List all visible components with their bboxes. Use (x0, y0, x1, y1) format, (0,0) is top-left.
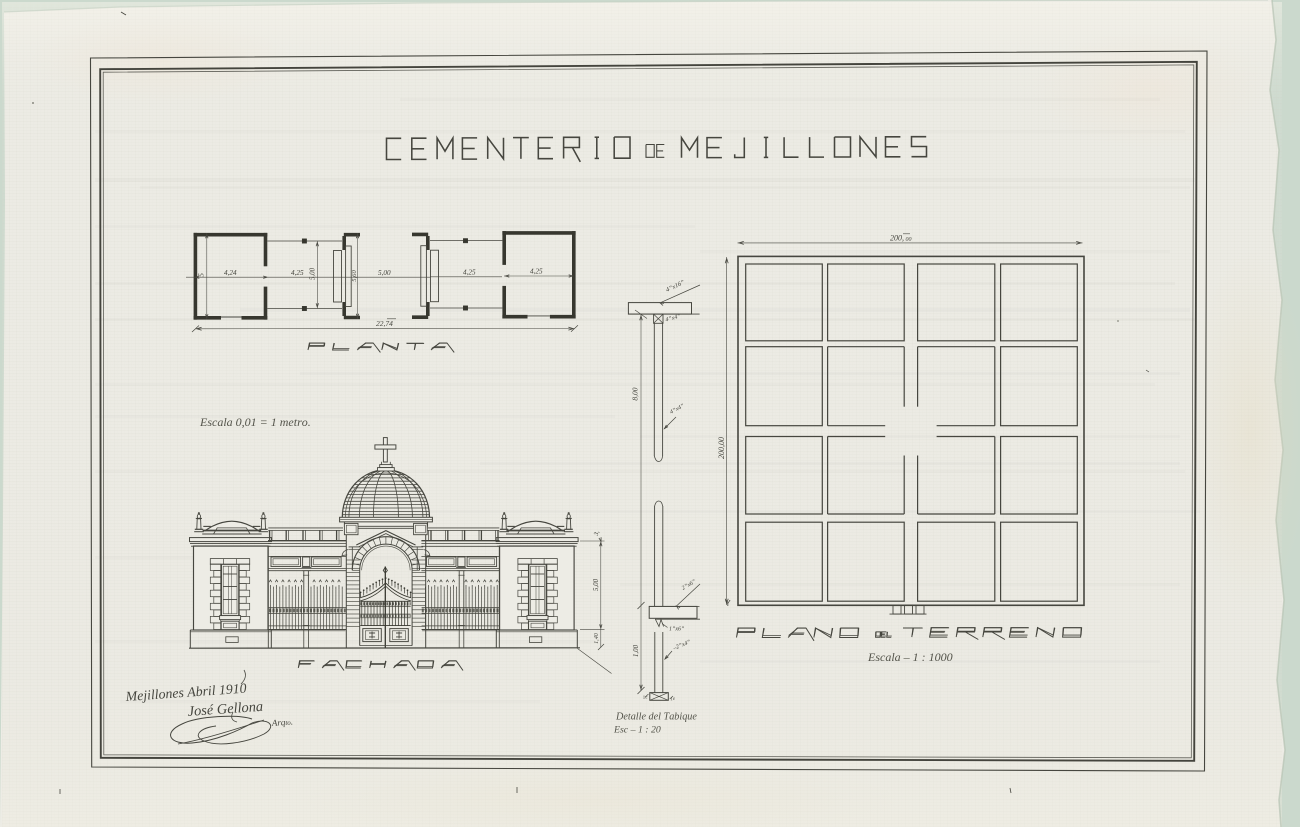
svg-text:1”x6”: 1”x6” (669, 627, 685, 633)
svg-text:22,74: 22,74 (376, 319, 393, 328)
svg-text:00: 00 (906, 237, 912, 243)
svg-text:5,00: 5,00 (592, 578, 600, 591)
svg-text:4,25: 4,25 (291, 269, 304, 277)
svg-text:Arqto.: Arqto. (270, 717, 293, 729)
svg-text:5,00: 5,00 (378, 269, 391, 277)
svg-text:4,25: 4,25 (530, 268, 543, 276)
svg-text:Escala – 1 : 1000: Escala – 1 : 1000 (867, 650, 953, 664)
svg-text:5: 5 (197, 273, 206, 277)
svg-text:200,00: 200,00 (717, 437, 726, 459)
svg-text:1,40: 1,40 (593, 632, 600, 644)
svg-text:Escala 0,01 = 1 metro.: Escala 0,01 = 1 metro. (199, 415, 311, 429)
svg-text:1,00: 1,00 (632, 644, 640, 657)
svg-text:5,60: 5,60 (351, 270, 358, 282)
svg-text:8,00: 8,00 (631, 387, 640, 400)
svg-text:5,00: 5,00 (309, 267, 317, 280)
svg-text:Y: Y (725, 598, 731, 608)
svg-text:4,24: 4,24 (224, 269, 237, 277)
svg-text:Esc – 1 : 20: Esc – 1 : 20 (613, 725, 661, 736)
svg-text:200,: 200, (890, 233, 904, 242)
svg-text:4,25: 4,25 (463, 269, 476, 277)
svg-text:Detalle del Tabique: Detalle del Tabique (615, 712, 697, 723)
